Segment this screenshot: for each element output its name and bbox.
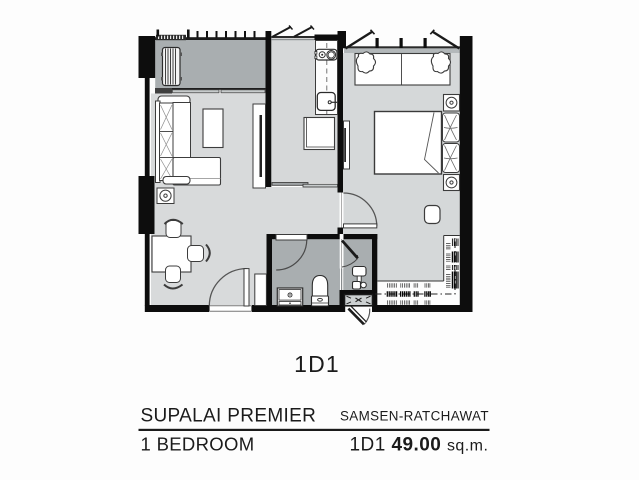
svg-text:1D1: 1D1 xyxy=(294,351,340,377)
svg-text:SUPALAI PREMIER: SUPALAI PREMIER xyxy=(141,406,317,427)
svg-text:1 BEDROOM: 1 BEDROOM xyxy=(141,434,255,455)
svg-text:1D1 49.00 sq.m.: 1D1 49.00 sq.m. xyxy=(350,435,489,456)
svg-text:SAMSEN-RATCHAWAT: SAMSEN-RATCHAWAT xyxy=(340,409,489,424)
